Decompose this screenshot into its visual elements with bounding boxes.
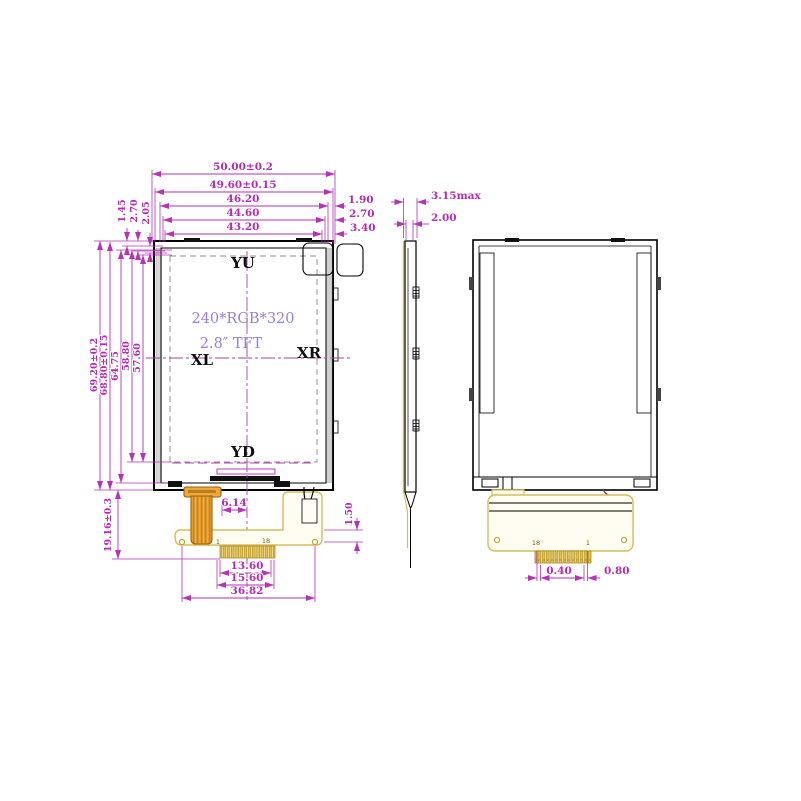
size-text: 2.8″ TFT: [200, 336, 263, 352]
dim-fpc-step: 1.50: [344, 502, 355, 526]
bezel-right-band: [326, 249, 332, 483]
electrode-label-yu: YU: [230, 254, 255, 272]
touch-tail-outline: [217, 469, 275, 474]
dim-tail-offset: 6.14: [221, 497, 247, 509]
electrode-label-yd: YD: [230, 443, 255, 461]
back-top-tab: [611, 238, 625, 242]
gold-fingers-front: [220, 546, 275, 558]
bonding-bar: [210, 476, 280, 481]
front-pin-18: 18: [262, 537, 270, 545]
bezel-top-tab-right: [296, 238, 312, 242]
back-side-tab: [657, 277, 661, 290]
dim-fingers-outer: 15.60: [231, 572, 264, 584]
front-top-dim-4: 43.20: [227, 221, 260, 233]
hatched-component: [337, 244, 363, 276]
electrode-label-xr: XR: [297, 344, 322, 362]
back-bottom-tab: [634, 479, 650, 487]
bezel-corner-tab-right: [274, 481, 290, 487]
back-view: 18 1 0.40 0.80: [469, 238, 661, 581]
touch-tail-stem: [191, 496, 212, 544]
front-topleft-dim-2: 2.05: [141, 201, 152, 224]
side-view: 3.15max 2.00: [391, 190, 481, 568]
back-fpc-tab: [492, 490, 524, 495]
front-top-dim-2: 46.20: [227, 193, 260, 205]
back-pin-18: 18: [532, 539, 540, 547]
bezel-corner-tab-left: [168, 481, 182, 487]
back-side-tab: [657, 388, 661, 401]
back-side-tab: [469, 277, 473, 290]
side-dim-thickness: 2.00: [431, 212, 457, 224]
front-right-dim-0: 1.90: [348, 194, 374, 206]
fpc-hole: [621, 537, 626, 542]
front-left-dim-4: 57.60: [132, 343, 143, 373]
front-left-dim-2: 64.75: [110, 351, 121, 381]
front-left-dim-1: 68.80±0.15: [99, 335, 110, 396]
fpc-hole: [494, 537, 499, 542]
gold-fingers-back: [535, 551, 591, 563]
front-topleft-dim-1: 2.70: [129, 199, 140, 223]
electrode-label-xl: XL: [191, 351, 214, 369]
front-top-dim-1: 49.60±0.15: [209, 179, 276, 191]
side-profile: [405, 241, 416, 492]
back-top-tab: [505, 238, 519, 242]
front-top-dim-0: 50.00±0.2: [213, 161, 273, 173]
front-view: YU YD XL XR 240*RGB*320 2.8″ TFT 1 18: [146, 238, 363, 600]
resolution-text: 240*RGB*320: [191, 311, 294, 327]
adhesive-strip-right: [637, 253, 651, 413]
fpc-hole: [312, 539, 317, 544]
back-dim-finger-pitch: 0.80: [604, 565, 630, 577]
side-dim-thickness-max: 3.15max: [431, 190, 481, 202]
front-top-dim-3: 44.60: [227, 207, 260, 219]
touch-tail-head-marks: [188, 490, 216, 493]
back-bottom-tab: [482, 479, 498, 487]
dim-fpc-width: 36.82: [231, 585, 264, 597]
back-outline: [473, 240, 657, 490]
front-pin-1: 1: [216, 538, 220, 546]
dim-fingers: 13.60: [231, 560, 264, 572]
back-pin-1: 1: [586, 539, 590, 547]
front-right-dim-2: 3.40: [350, 222, 376, 234]
fpc-hole: [179, 539, 184, 544]
adhesive-strip-left: [480, 253, 494, 413]
bezel-top-tab-left: [184, 238, 200, 242]
front-topleft-dim-0: 1.45: [117, 199, 128, 222]
front-bottomleft-dim: 19.16±0.3: [103, 498, 114, 552]
front-right-dim-1: 2.70: [349, 208, 375, 220]
side-fpc-curve: [404, 492, 408, 548]
lcd-outline-drawing: YU YD XL XR 240*RGB*320 2.8″ TFT 1 18: [0, 0, 801, 801]
back-side-tab: [469, 388, 473, 401]
front-left-dim-3: 58.80: [121, 341, 132, 371]
technical-drawing-svg: YU YD XL XR 240*RGB*320 2.8″ TFT 1 18: [0, 0, 801, 801]
back-dim-finger-width: 0.40: [546, 565, 572, 577]
